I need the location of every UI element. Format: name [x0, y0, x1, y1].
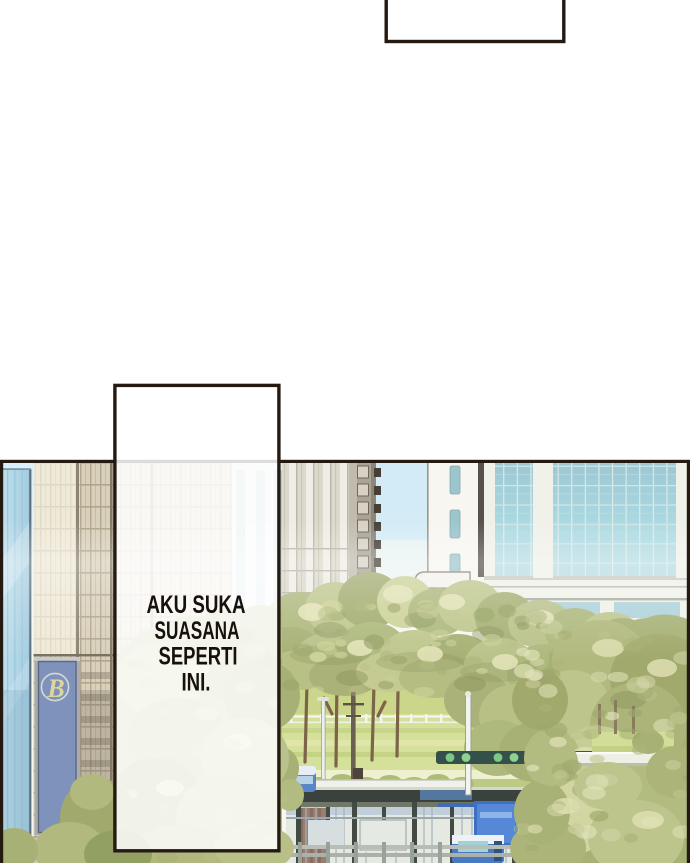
svg-text:B: B [46, 674, 64, 703]
svg-text:SEPERTI: SEPERTI [159, 643, 238, 671]
svg-text:SUASANA: SUASANA [155, 617, 240, 645]
svg-text:INI.: INI. [182, 669, 211, 697]
svg-text:AKU SUKA: AKU SUKA [147, 591, 246, 619]
